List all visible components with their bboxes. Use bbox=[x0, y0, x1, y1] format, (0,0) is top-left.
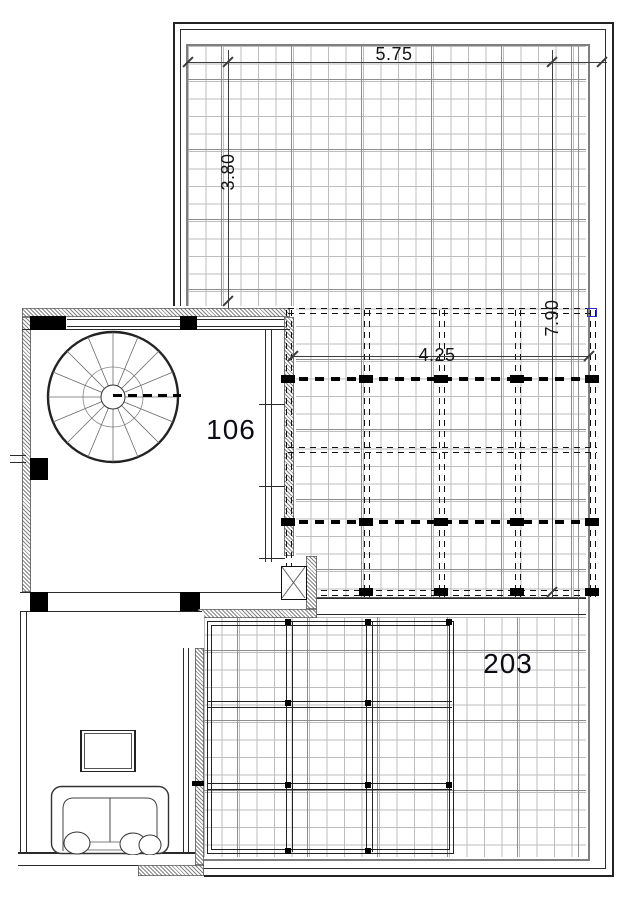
beam-wall-tick bbox=[192, 781, 204, 786]
window-line bbox=[67, 319, 180, 320]
wall-line bbox=[18, 865, 140, 866]
beam-joint bbox=[359, 518, 373, 526]
walkway-bottom-line bbox=[306, 614, 586, 615]
stair-axis-dashline bbox=[113, 394, 181, 397]
dim-label-top-width: 5.75 bbox=[354, 44, 434, 64]
wall-hatch-bottom bbox=[138, 865, 204, 876]
window-line bbox=[271, 330, 272, 562]
window-sill bbox=[259, 558, 285, 559]
pergola-beam-v bbox=[286, 310, 287, 597]
beam-joint bbox=[281, 518, 295, 526]
deck-beam-v bbox=[286, 621, 293, 852]
left-exterior-tick bbox=[10, 455, 26, 456]
beam-joint bbox=[585, 518, 599, 526]
wall-line bbox=[26, 612, 27, 853]
window-line bbox=[197, 319, 284, 320]
walkway-top-line bbox=[306, 598, 586, 599]
pergola-beam-v bbox=[364, 310, 365, 597]
deck-node bbox=[285, 700, 291, 706]
deck-node bbox=[285, 848, 291, 854]
wall-line bbox=[20, 612, 21, 853]
beam-joint bbox=[434, 518, 448, 526]
elevator-shaft bbox=[281, 566, 307, 600]
room-203-label: 203 bbox=[477, 649, 539, 679]
coffee-table bbox=[80, 730, 136, 772]
door-frame-line bbox=[183, 648, 184, 852]
pergola-beam-v bbox=[369, 310, 370, 597]
beam-joint bbox=[510, 588, 524, 596]
beam-joint bbox=[434, 588, 448, 596]
beam-joint bbox=[585, 375, 599, 383]
pergola-beam-v bbox=[291, 310, 292, 597]
deck-node bbox=[365, 619, 371, 625]
coffee-table-inner bbox=[84, 733, 132, 769]
deck-node bbox=[365, 782, 371, 788]
beam-joint bbox=[510, 375, 524, 383]
room-106-label: 106 bbox=[200, 415, 262, 445]
spiral-staircase bbox=[44, 328, 182, 466]
pergola-beam-h bbox=[288, 452, 597, 453]
wall-hatch-203-left bbox=[195, 648, 204, 865]
selection-handle-marker bbox=[587, 308, 597, 317]
column bbox=[30, 592, 48, 612]
wall-hatch-shaft bbox=[306, 556, 317, 609]
window-line bbox=[67, 326, 180, 327]
deck-node bbox=[446, 782, 452, 788]
deck-node bbox=[365, 848, 371, 854]
beam-joint bbox=[434, 375, 448, 383]
deck-node bbox=[285, 782, 291, 788]
deck-node bbox=[446, 619, 452, 625]
door-frame-line bbox=[188, 648, 189, 852]
deck-beam-v bbox=[366, 621, 373, 852]
sofa bbox=[50, 785, 170, 855]
deck-node bbox=[365, 700, 371, 706]
floor-plan-canvas: 106 bbox=[0, 0, 625, 900]
beam-joint bbox=[510, 518, 524, 526]
deck-node bbox=[285, 619, 291, 625]
left-exterior-tick bbox=[10, 462, 26, 463]
beam-joint bbox=[359, 375, 373, 383]
deck-beam-h bbox=[207, 701, 452, 708]
beam-joint bbox=[359, 588, 373, 596]
beam-joint bbox=[281, 375, 295, 383]
deck-frame-inner bbox=[211, 625, 450, 850]
shaft-x-icon bbox=[282, 567, 305, 598]
window-line bbox=[265, 330, 266, 562]
dim-label-right-height: 7.90 bbox=[542, 290, 562, 346]
window-line bbox=[197, 326, 284, 327]
beam-joint bbox=[585, 588, 599, 596]
wall-line bbox=[20, 592, 296, 593]
pergola-beam-v bbox=[515, 310, 516, 597]
column bbox=[180, 316, 197, 330]
pergola-beam-v bbox=[520, 310, 521, 597]
window-sill bbox=[259, 404, 285, 405]
window-sill bbox=[259, 486, 285, 487]
deck-beam-h bbox=[207, 783, 452, 790]
wall-hatch-203-top bbox=[198, 609, 317, 618]
dim-label-pergola-width: 4.25 bbox=[407, 345, 467, 365]
right-rail-line bbox=[578, 45, 579, 857]
column bbox=[180, 592, 200, 612]
pergola-beam-v bbox=[595, 310, 596, 597]
pergola-beam-h bbox=[288, 447, 597, 448]
dim-label-left-height: 3.80 bbox=[218, 144, 238, 200]
